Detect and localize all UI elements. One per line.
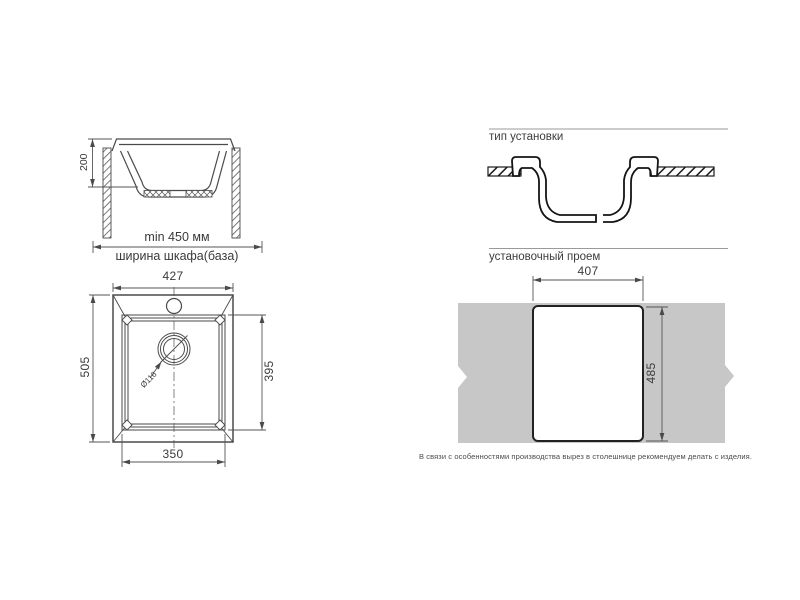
plan-view-drawing	[89, 283, 266, 467]
dim-min-cabinet-width: min 450 мм	[122, 231, 232, 244]
rim-inner-rect	[122, 315, 225, 430]
dim-cutout-height-485: 485	[645, 353, 657, 393]
cabinet-side-right-hatch	[232, 148, 240, 238]
cutout-drawing	[458, 276, 734, 443]
dim-cutout-width-407: 407	[558, 265, 618, 277]
dim-depth-200: 200	[79, 147, 90, 177]
mounting-type-drawing	[488, 129, 728, 249]
technical-drawing	[0, 0, 800, 600]
cabinet-side-left-hatch	[103, 148, 111, 238]
rim-corner-bevels	[113, 295, 233, 442]
countertop-edge-right-hatch	[650, 167, 714, 176]
sink-profile-left	[512, 157, 596, 222]
bowl-inner-wall	[128, 151, 220, 191]
bowl-inner-rect	[128, 321, 219, 424]
dim-bowl-depth-395: 395	[263, 351, 275, 391]
sink-outer-rect	[113, 295, 233, 442]
bowl-foot-pad-right	[186, 191, 212, 198]
bowl-outer-rect	[125, 318, 222, 427]
bowl-corner-diamonds	[122, 315, 225, 430]
bowl-foot-pad-left	[144, 191, 170, 198]
mounting-type-title: тип установки	[489, 132, 563, 144]
faucet-hole	[167, 299, 182, 314]
sink-spec-sheet: 200 min 450 мм ширина шкафа(база) тип ус…	[0, 0, 800, 600]
dim-overall-width-427: 427	[143, 270, 203, 282]
dim-overall-depth-505: 505	[79, 347, 91, 387]
cabinet-width-label: ширина шкафа(база)	[92, 250, 262, 263]
dim-bowl-width-350: 350	[143, 448, 203, 460]
dim-lines-depth	[88, 139, 138, 187]
cutout-opening	[533, 306, 643, 441]
sink-profile-right	[574, 157, 658, 222]
cutout-title: установочный проем	[489, 252, 600, 264]
cutout-note: В связи с особенностями производства выр…	[419, 453, 754, 461]
